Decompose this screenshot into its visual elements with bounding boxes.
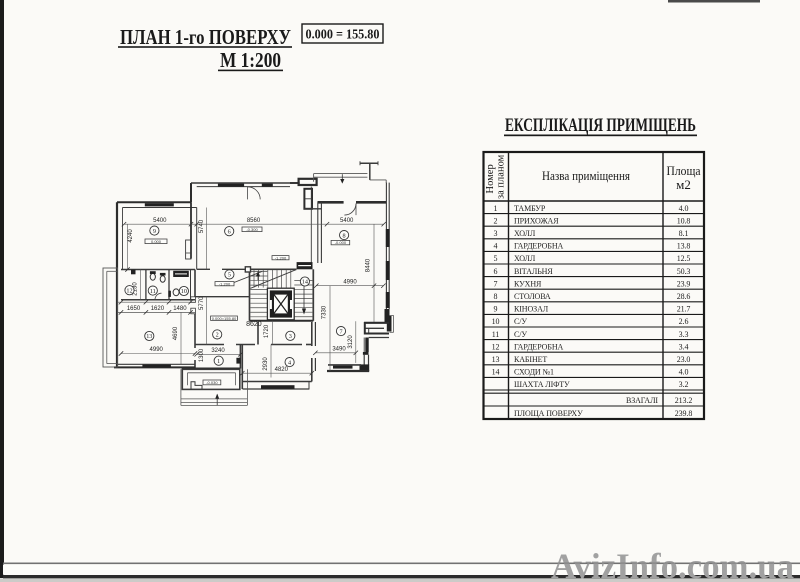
svg-text:ГАРДЕРОБНА: ГАРДЕРОБНА <box>514 342 564 351</box>
svg-text:13.8: 13.8 <box>677 242 691 251</box>
svg-text:3.3: 3.3 <box>679 330 689 339</box>
svg-text:М 1:200: М 1:200 <box>220 48 281 72</box>
svg-text:-0.000: -0.000 <box>335 240 347 245</box>
svg-text:4240: 4240 <box>128 229 134 243</box>
svg-text:-1.200: -1.200 <box>275 255 287 260</box>
svg-text:ПРИХОЖАЯ: ПРИХОЖАЯ <box>514 216 559 225</box>
svg-text:ВЗАГАЛІ: ВЗАГАЛІ <box>626 396 658 405</box>
svg-text:0.000=155.80: 0.000=155.80 <box>212 316 237 321</box>
svg-text:10: 10 <box>492 317 500 326</box>
svg-text:5: 5 <box>494 254 498 263</box>
svg-text:КУХНЯ: КУХНЯ <box>514 279 542 288</box>
svg-text:1: 1 <box>217 358 220 365</box>
svg-text:7: 7 <box>339 328 342 335</box>
svg-text:за планом: за планом <box>496 154 507 199</box>
svg-text:2.6: 2.6 <box>679 317 689 326</box>
svg-text:С/У: С/У <box>514 330 527 339</box>
svg-text:3: 3 <box>289 333 292 340</box>
svg-text:5400: 5400 <box>153 218 167 224</box>
svg-text:ТАМБУР: ТАМБУР <box>514 204 546 213</box>
svg-text:1480: 1480 <box>173 306 187 312</box>
svg-text:Номер: Номер <box>485 164 496 193</box>
svg-text:4690: 4690 <box>173 326 179 340</box>
svg-text:3240: 3240 <box>211 348 225 354</box>
svg-text:8440: 8440 <box>365 258 371 272</box>
svg-text:8: 8 <box>343 232 346 239</box>
svg-text:0.000: 0.000 <box>151 239 162 244</box>
svg-text:1650: 1650 <box>127 306 141 312</box>
svg-text:-0.030: -0.030 <box>206 380 218 385</box>
svg-text:СХОДИ №1: СХОДИ №1 <box>514 368 554 377</box>
svg-text:1720: 1720 <box>264 324 270 338</box>
svg-text:9: 9 <box>494 305 498 314</box>
svg-text:КІНОЗАЛ: КІНОЗАЛ <box>514 305 549 314</box>
svg-text:AvizInfo.com.ua: AvizInfo.com.ua <box>551 546 794 582</box>
svg-text:8560: 8560 <box>247 218 261 224</box>
svg-text:9: 9 <box>153 228 156 235</box>
svg-text:КАБІНЕТ: КАБІНЕТ <box>514 355 547 364</box>
svg-text:11: 11 <box>150 288 156 295</box>
svg-text:10: 10 <box>181 288 187 295</box>
svg-text:ГАРДЕРОБНА: ГАРДЕРОБНА <box>514 242 564 251</box>
svg-text:2: 2 <box>216 332 219 339</box>
svg-text:11: 11 <box>492 330 500 339</box>
svg-text:4: 4 <box>494 242 498 251</box>
svg-text:28.6: 28.6 <box>677 292 691 301</box>
svg-text:7330: 7330 <box>321 305 327 319</box>
svg-text:10.8: 10.8 <box>677 216 691 225</box>
svg-text:8: 8 <box>494 292 498 301</box>
svg-text:ХОЛЛ: ХОЛЛ <box>514 229 536 238</box>
svg-text:3: 3 <box>494 229 498 238</box>
svg-text:-0.300: -0.300 <box>246 227 258 232</box>
svg-text:23.0: 23.0 <box>677 355 691 364</box>
svg-text:4990: 4990 <box>343 279 357 285</box>
svg-text:2930: 2930 <box>263 357 269 371</box>
svg-text:3.2: 3.2 <box>679 380 689 389</box>
svg-text:0.000 = 155.80: 0.000 = 155.80 <box>306 28 380 43</box>
svg-text:5: 5 <box>228 272 231 279</box>
svg-text:5740: 5740 <box>199 219 205 233</box>
svg-text:14: 14 <box>492 368 500 377</box>
svg-text:12: 12 <box>492 342 500 351</box>
svg-text:12: 12 <box>126 287 132 294</box>
svg-text:-1.200: -1.200 <box>219 281 231 286</box>
svg-text:7: 7 <box>494 279 498 288</box>
svg-text:4.0: 4.0 <box>679 204 689 213</box>
svg-text:1300: 1300 <box>199 348 205 362</box>
svg-text:ПЛАН 1-го ПОВЕРХУ: ПЛАН 1-го ПОВЕРХУ <box>120 25 291 49</box>
svg-text:4990: 4990 <box>150 347 164 353</box>
svg-text:213.2: 213.2 <box>675 396 693 405</box>
svg-text:14: 14 <box>302 279 308 286</box>
svg-text:5400: 5400 <box>340 218 354 224</box>
svg-text:8.1: 8.1 <box>679 229 689 238</box>
svg-text:ПЛОЩА ПОВЕРХУ: ПЛОЩА ПОВЕРХУ <box>514 409 583 418</box>
svg-text:6: 6 <box>228 228 231 235</box>
svg-text:СТОЛОВА: СТОЛОВА <box>514 292 551 301</box>
svg-text:13: 13 <box>492 355 500 364</box>
svg-text:23.9: 23.9 <box>677 279 691 288</box>
svg-text:ЕКСПЛІКАЦІЯ ПРИМІЩЕНЬ: ЕКСПЛІКАЦІЯ ПРИМІЩЕНЬ <box>505 115 696 136</box>
svg-text:8620: 8620 <box>246 321 262 328</box>
svg-text:3.4: 3.4 <box>679 342 689 351</box>
svg-text:ВІТАЛЬНЯ: ВІТАЛЬНЯ <box>514 267 553 276</box>
svg-text:5770: 5770 <box>199 296 205 310</box>
svg-text:1: 1 <box>494 204 498 213</box>
svg-text:С/У: С/У <box>514 317 527 326</box>
svg-text:12.5: 12.5 <box>677 254 691 263</box>
svg-text:4820: 4820 <box>275 367 289 373</box>
svg-text:м2: м2 <box>676 177 691 192</box>
svg-text:ШАХТА ЛІФТУ: ШАХТА ЛІФТУ <box>514 380 570 389</box>
svg-text:1620: 1620 <box>151 306 165 312</box>
svg-text:239.8: 239.8 <box>675 409 693 418</box>
svg-text:13: 13 <box>146 333 152 340</box>
svg-text:Площа: Площа <box>667 163 701 178</box>
svg-text:21.7: 21.7 <box>677 305 691 314</box>
svg-text:Назва приміщення: Назва приміщення <box>542 168 630 183</box>
svg-text:4.0: 4.0 <box>679 368 689 377</box>
svg-text:4: 4 <box>288 359 291 366</box>
svg-text:3120: 3120 <box>348 335 354 349</box>
svg-text:50.3: 50.3 <box>677 267 691 276</box>
svg-text:3490: 3490 <box>332 347 346 353</box>
svg-text:2: 2 <box>494 216 498 225</box>
svg-text:6: 6 <box>494 267 498 276</box>
svg-text:ХОЛЛ: ХОЛЛ <box>514 254 536 263</box>
